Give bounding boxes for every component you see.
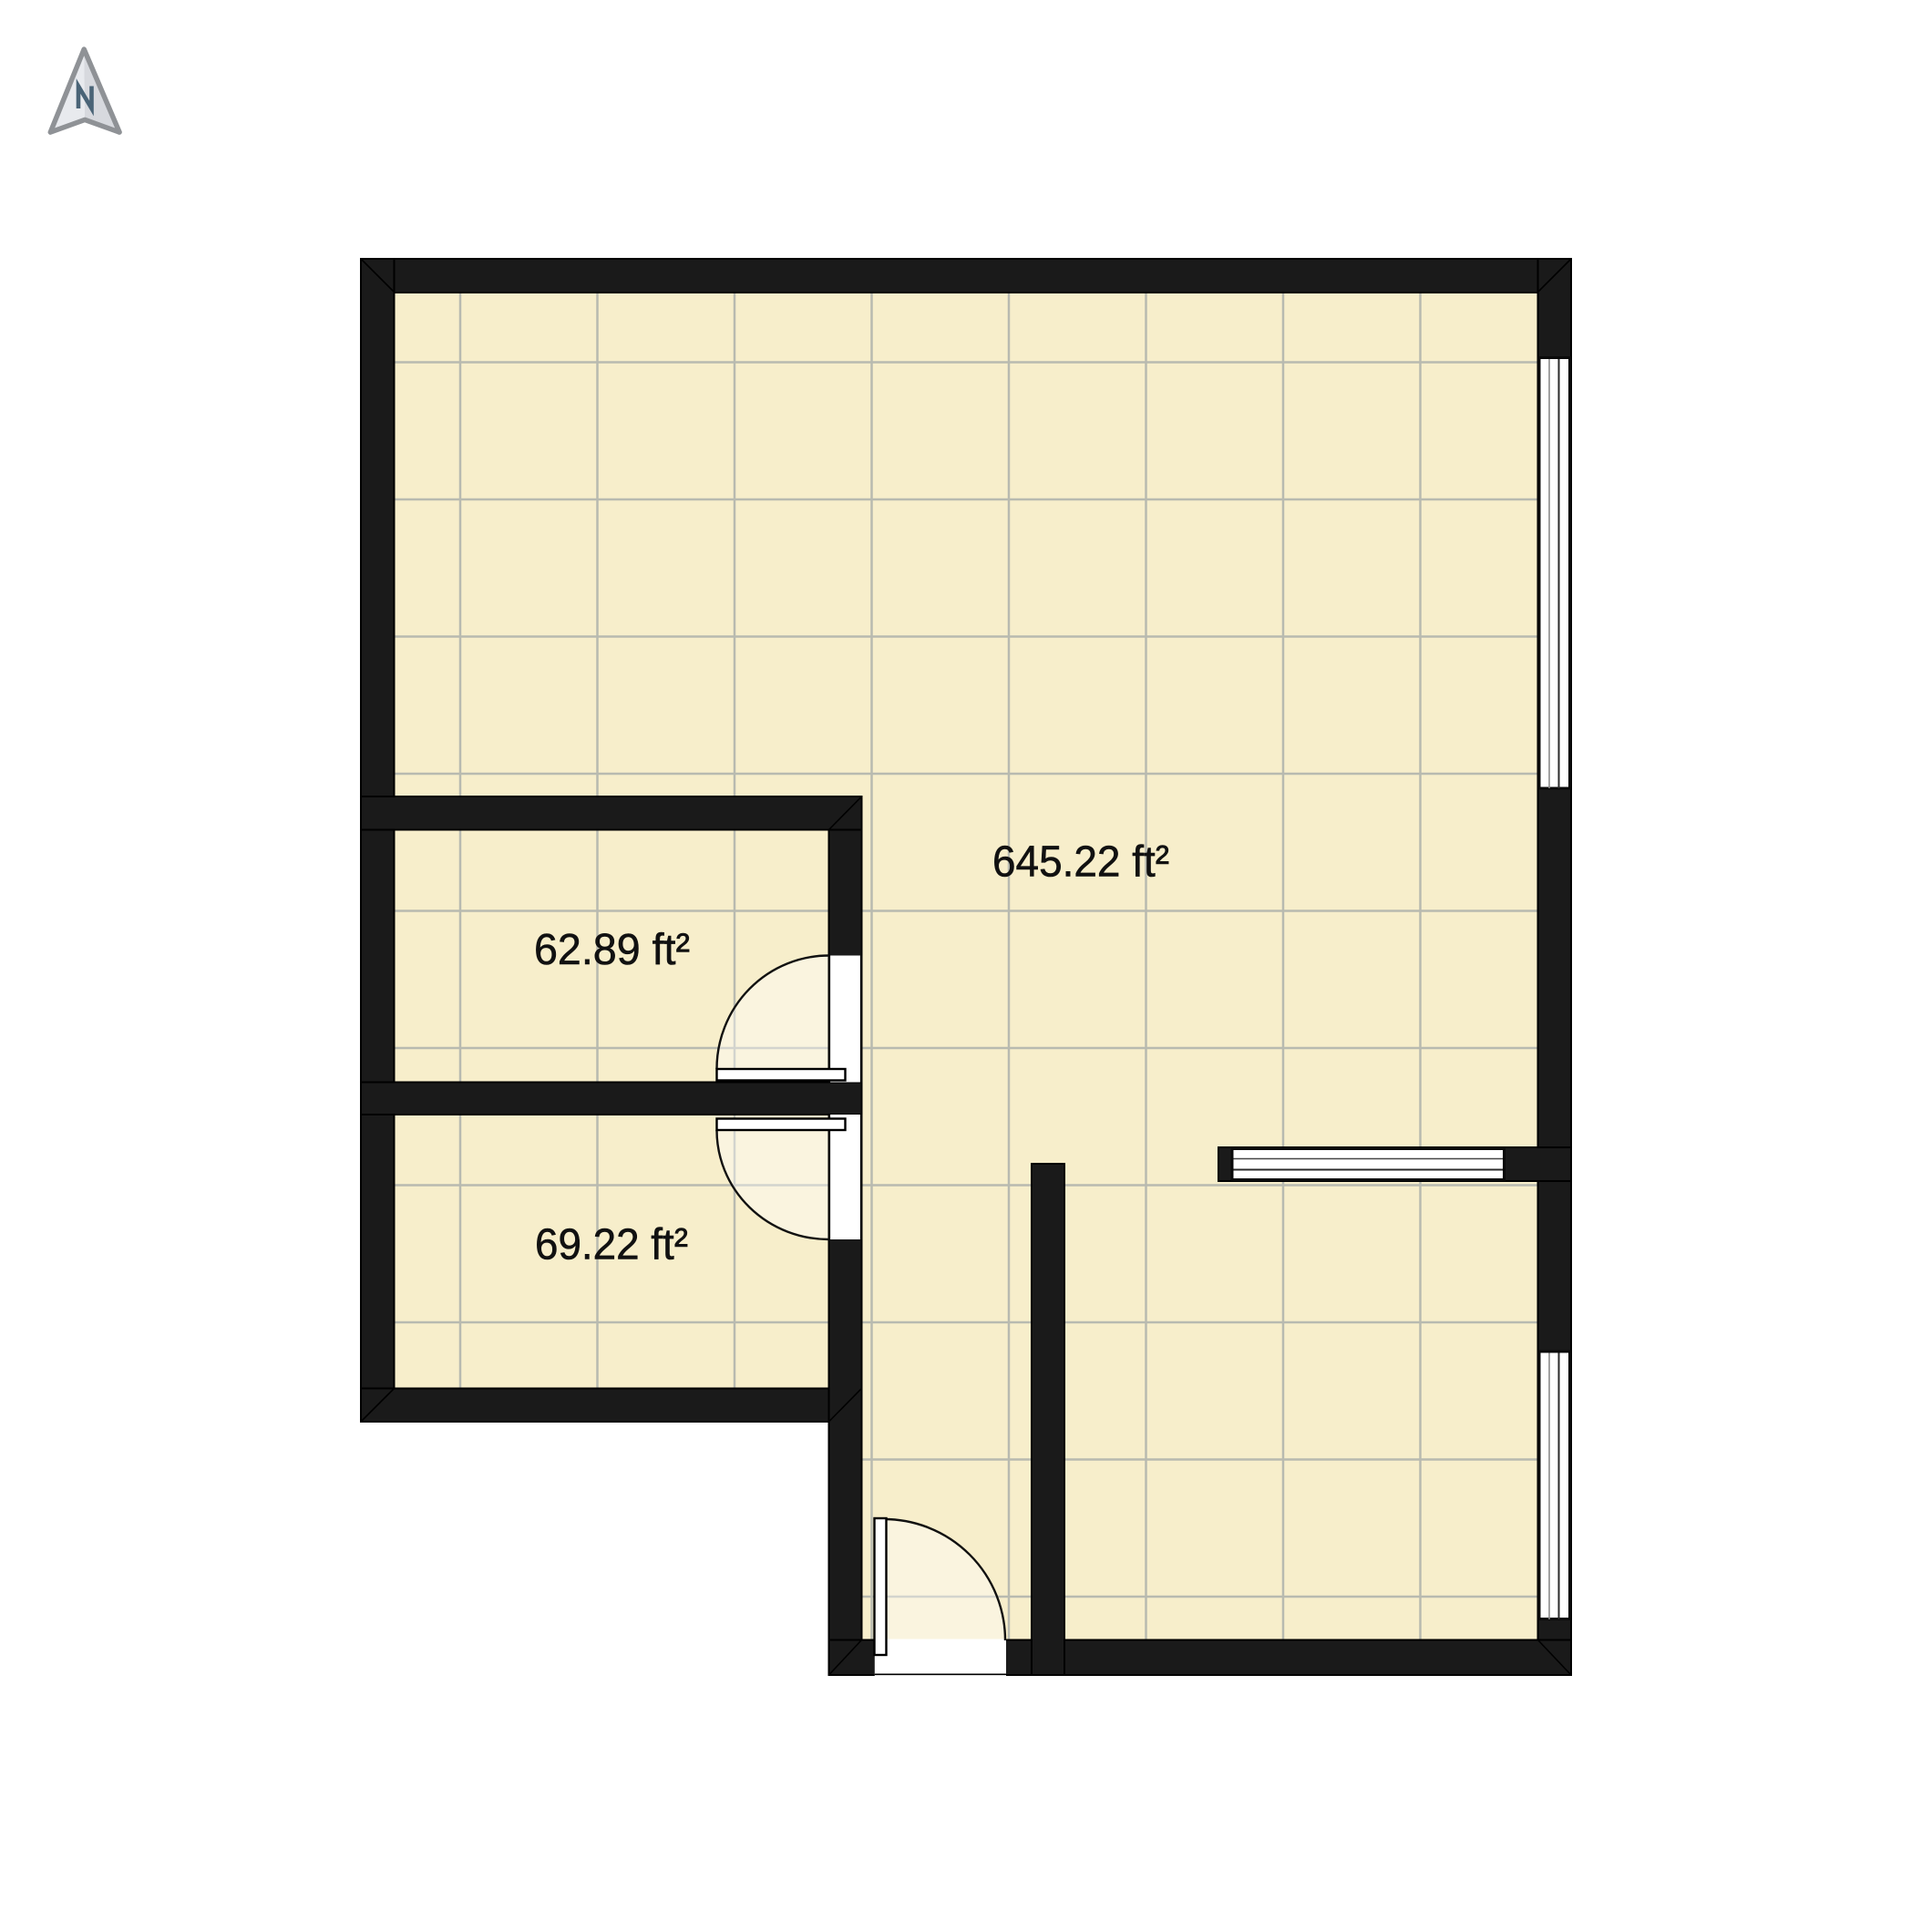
svg-text:645.22 ft²: 645.22 ft² [992, 838, 1169, 887]
svg-text:62.89 ft²: 62.89 ft² [534, 926, 690, 974]
svg-text:69.22 ft²: 69.22 ft² [535, 1221, 688, 1269]
